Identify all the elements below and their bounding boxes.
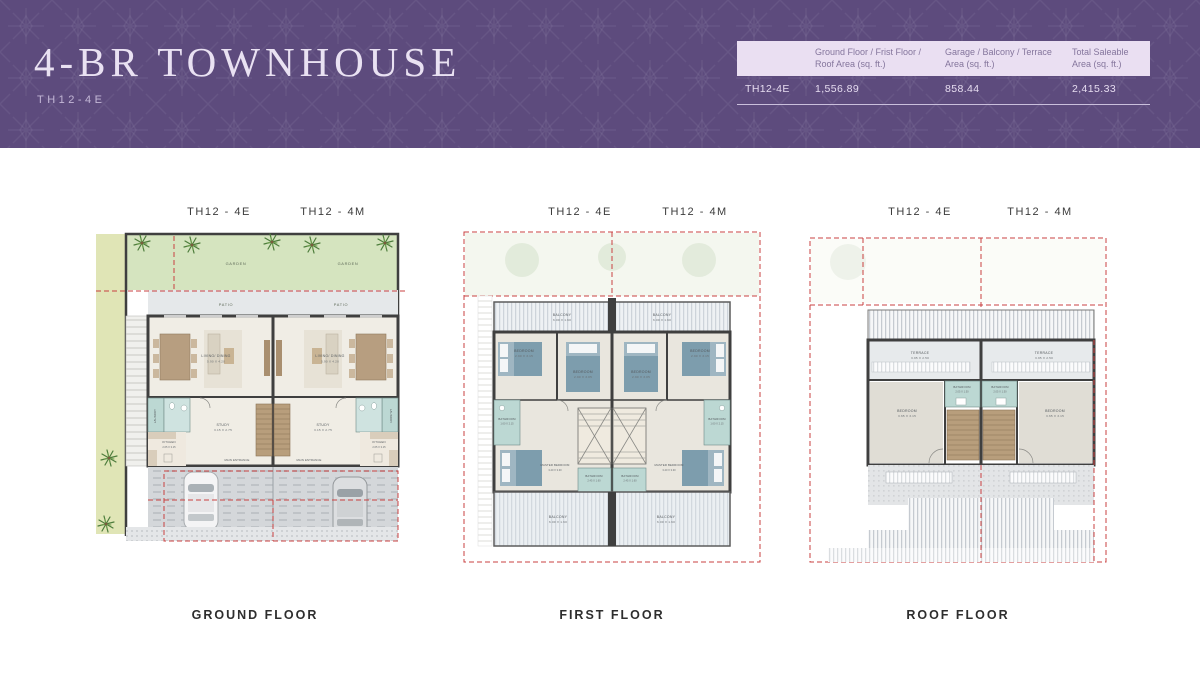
bedroom-a-label-right: BEDROOM [690,349,710,353]
brochure-page: 4-BR TOWNHOUSE TH12-4E Ground Floor / Fr… [0,0,1200,675]
roof-bath-dim-left: 2.05 X 1.50 [955,390,969,394]
bedroom-b-label-left: BEDROOM [573,370,593,374]
area-table-value-total: 2,415.33 [1072,76,1150,104]
bedroom-b-label-right: BEDROOM [631,370,651,374]
terrace-dim-left: 3.95 X 2.50 [911,356,929,360]
balcony-divider [608,298,616,332]
bedroom-a-dim-left: 2.90 X 3.15 [515,354,533,358]
pergola-hatch [868,310,1094,340]
area-table-value-garage: 858.44 [945,76,1072,104]
first-unit-label-4m: TH12 - 4M [630,206,760,218]
service-rooms-left [148,398,190,466]
balcony-rear-dim-left: 6.00 X 1.60 [549,520,567,524]
garden-label-right: GARDEN [338,261,359,266]
bath-center-dim-left: 2.45 X 1.60 [587,479,601,483]
area-table: Ground Floor / Frist Floor / Roof Area (… [737,41,1150,105]
rear-balcony-divider [608,492,616,546]
kitchen-dim-right: 2.65 X 3.15 [372,445,386,449]
bath-side-dim-right: 1.60 X 2.15 [710,422,724,426]
roof-unit-label-4e: TH12 - 4E [855,206,985,218]
page-subtitle: TH12-4E [37,94,106,106]
roof-bedroom-left [870,382,943,463]
roof-bedroom-right [1019,382,1092,463]
bath-center-label-left: BATHROOM [585,474,603,478]
patio-label-right: PATIO [334,302,349,307]
area-table-header-total-area: Total Saleable Area (sq. ft.) [1072,41,1150,76]
area-table-header-row: Ground Floor / Frist Floor / Roof Area (… [737,41,1150,76]
kitchen-label-right: KITCHEN [372,440,385,444]
area-table-header-blank [737,41,815,76]
living-dim-left: 5.90 X 4.20 [207,360,225,364]
terrace-label-right: TERRACE [1035,351,1054,355]
roof-floor-caption: ROOF FLOOR [808,608,1108,622]
living-label-left: LIVING/ DINING [201,354,230,358]
terrace-hatch-right [992,362,1090,372]
master-label-right: MASTER BEDROOM [655,463,685,467]
balcony-rear-label-right: BALCONY [657,515,676,519]
master-label-left: MASTER BEDROOM [541,463,571,467]
page-title: 4-BR TOWNHOUSE [34,38,461,86]
ground-unit-label-4e: TH12 - 4E [154,206,284,218]
roof-floor-plan: TERRACE 3.95 X 2.50 TERRACE 3.95 X 2.50 … [808,230,1108,582]
kitchen-dim-left: 2.65 X 3.15 [162,445,176,449]
living-label-right: LIVING/ DINING [315,354,344,358]
first-unit-label-4e: TH12 - 4E [515,206,645,218]
header-band: 4-BR TOWNHOUSE TH12-4E Ground Floor / Fr… [0,0,1200,148]
side-ledge [478,296,492,546]
patio-label-left: PATIO [219,302,234,307]
entrance-label-left: MAIN ENTRANCE [224,458,249,462]
balcony-rear-label-left: BALCONY [549,515,568,519]
patio-area [148,290,398,316]
garden-label-left: GARDEN [226,261,247,266]
roof-bedroom-label-left: BEDROOM [897,409,917,413]
area-table-header-floor-area: Ground Floor / Frist Floor / Roof Area (… [815,41,945,76]
balcony-label-right: BALCONY [653,313,672,317]
master-dim-right: 3.40 X 3.30 [662,468,676,472]
area-table-data-row: TH12-4E 1,556.89 858.44 2,415.33 [737,76,1150,105]
terrace-hatch-left [872,362,970,372]
study-label-right: STUDY [316,423,330,427]
side-steps [126,316,148,466]
roof-bath-dim-right: 2.05 X 1.50 [993,390,1007,394]
bath-side-label-right: BATHROOM [708,417,726,421]
study-dim-right: 3.15 X 2.75 [314,428,332,432]
living-dim-right: 5.90 X 4.20 [321,360,339,364]
bedroom-b-dim-left: 2.90 X 3.05 [574,375,592,379]
deck-hatch-left [886,472,952,483]
bath-side-label-left: BATHROOM [498,417,516,421]
lower-hatch-widest [828,548,1094,562]
first-floor-caption: FIRST FLOOR [462,608,762,622]
tree-shadow [830,244,866,280]
deck-hatch-right [1010,472,1076,483]
ground-floor-caption: GROUND FLOOR [96,608,414,622]
car-icon-right [333,477,367,535]
roof-bath-label-right: BATHROOM [991,385,1009,389]
bath-center-label-right: BATHROOM [621,474,639,478]
bedroom-a-label-left: BEDROOM [514,349,534,353]
terrace-dim-right: 3.95 X 2.50 [1035,356,1053,360]
balcony-rear-dim-right: 6.00 X 1.60 [657,520,675,524]
terrace-label-left: TERRACE [911,351,930,355]
balcony-dim-right: 6.00 X 1.60 [653,318,671,322]
ground-unit-label-4m: TH12 - 4M [268,206,398,218]
bedroom-b-dim-right: 2.90 X 3.05 [632,375,650,379]
entry-pavement [126,527,398,541]
car-icon-left [184,472,218,530]
kitchen-label-left: KITCHEN [162,440,175,444]
laundry-label-left: LAUNDRY [153,409,157,423]
roof-bath-label-left: BATHROOM [953,385,971,389]
area-table-row-label: TH12-4E [737,76,815,104]
master-dim-left: 3.40 X 3.30 [548,468,562,472]
balcony-label-left: BALCONY [553,313,572,317]
roof-bedroom-dim-right: 3.65 X 3.15 [1046,414,1064,418]
balcony-dim-left: 6.00 X 1.60 [553,318,571,322]
bath-side-dim-left: 1.60 X 2.15 [500,422,514,426]
roof-bedroom-label-right: BEDROOM [1045,409,1065,413]
area-table-header-garage-area: Garage / Balcony / Terrace Area (sq. ft.… [945,41,1072,76]
roof-bedroom-dim-left: 3.65 X 3.15 [898,414,916,418]
study-label-left: STUDY [216,423,230,427]
bath-center-dim-right: 2.45 X 1.60 [623,479,637,483]
first-floor-plan: BALCONY 6.00 X 1.60 BALCONY 6.00 X 1.60 … [462,230,762,582]
study-dim-left: 3.15 X 2.75 [214,428,232,432]
area-table-value-floor: 1,556.89 [815,76,945,104]
roof-unit-label-4m: TH12 - 4M [975,206,1105,218]
ground-floor-plan: GARDEN GARDEN PATIO PATIO [96,230,406,586]
bedroom-a-dim-right: 2.90 X 3.15 [691,354,709,358]
laundry-label-right: LAUNDRY [389,409,393,423]
side-grass-strip [96,234,126,534]
entrance-label-right: MAIN ENTRANCE [296,458,321,462]
